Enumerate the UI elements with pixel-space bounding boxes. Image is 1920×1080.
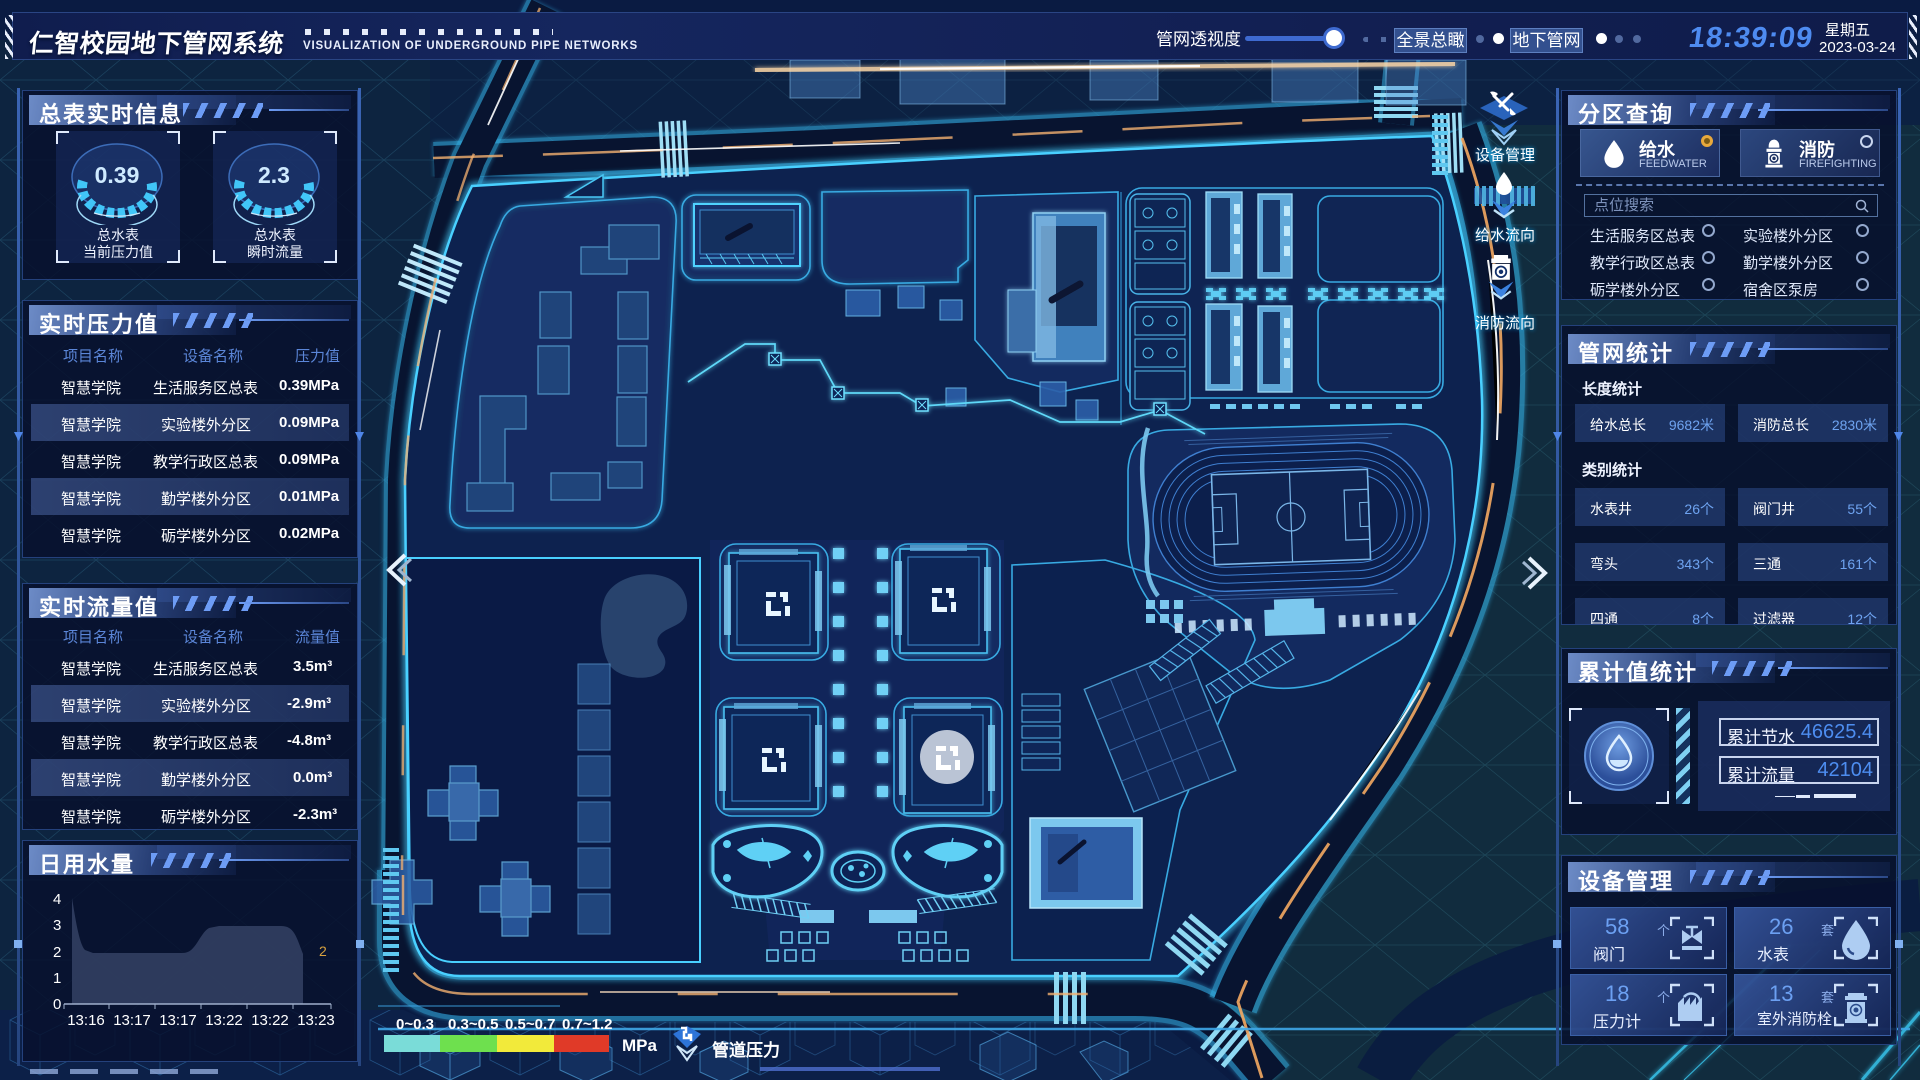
svg-text:3: 3 <box>53 917 61 934</box>
svg-text:4: 4 <box>53 891 61 908</box>
svg-text:13:22: 13:22 <box>205 1012 243 1029</box>
svg-text:13:16: 13:16 <box>67 1012 105 1029</box>
svg-text:2: 2 <box>319 943 327 959</box>
svg-text:0: 0 <box>53 996 61 1013</box>
svg-text:13:23: 13:23 <box>297 1012 335 1029</box>
svg-text:1: 1 <box>53 970 61 987</box>
svg-text:0.39: 0.39 <box>95 162 140 188</box>
svg-text:13:22: 13:22 <box>251 1012 289 1029</box>
svg-text:13:17: 13:17 <box>159 1012 197 1029</box>
svg-text:2: 2 <box>53 944 61 961</box>
svg-text:2.3: 2.3 <box>258 162 290 188</box>
svg-text:13:17: 13:17 <box>113 1012 151 1029</box>
